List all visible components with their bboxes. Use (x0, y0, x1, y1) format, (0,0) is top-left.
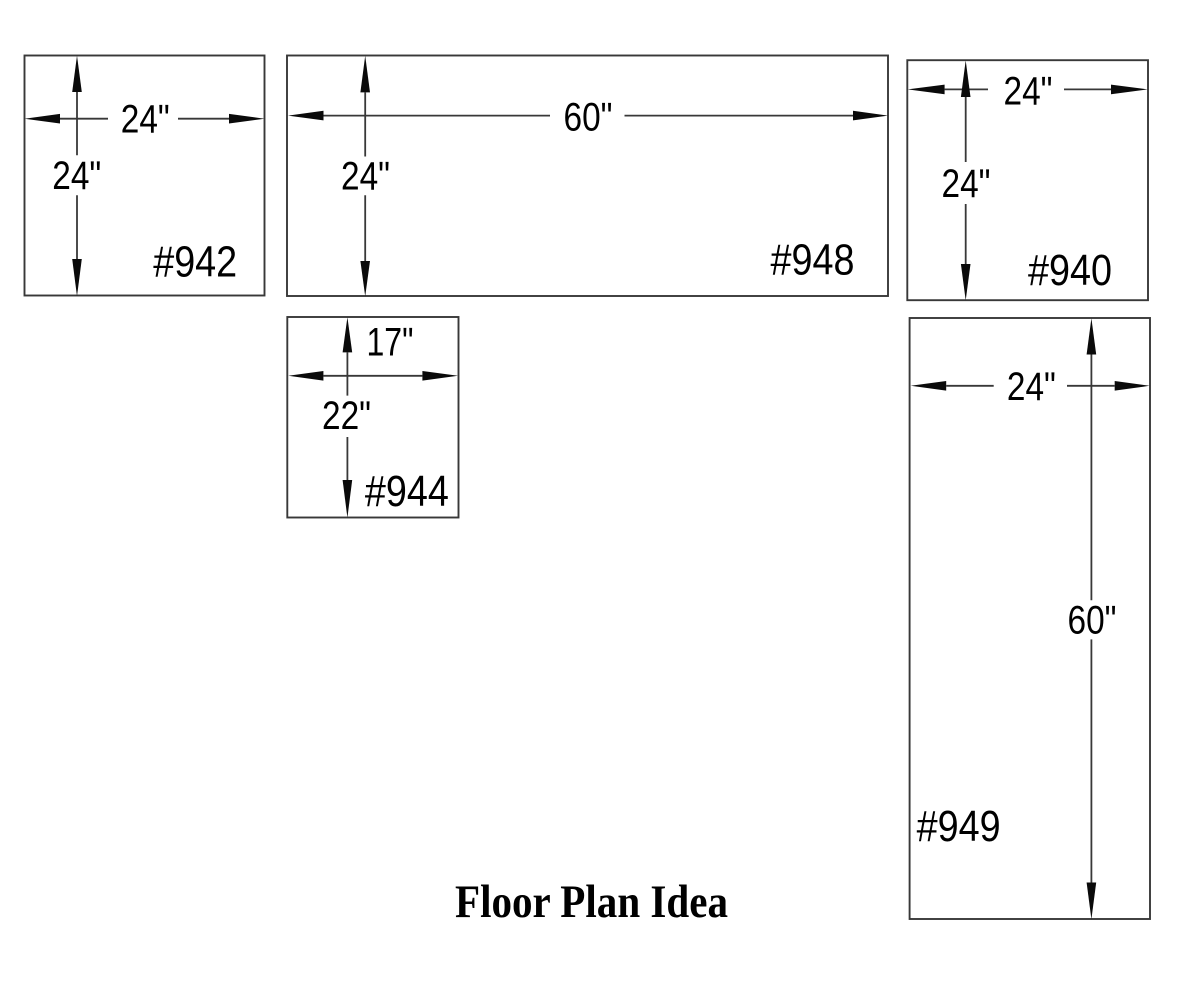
svg-text:24": 24" (121, 98, 170, 142)
svg-text:22": 22" (322, 394, 371, 438)
svg-text:#949: #949 (917, 802, 1001, 851)
svg-text:60": 60" (1068, 599, 1117, 643)
svg-text:24": 24" (1007, 365, 1056, 409)
svg-text:24": 24" (1004, 70, 1053, 114)
svg-text:24": 24" (52, 154, 101, 198)
svg-text:#942: #942 (153, 238, 237, 287)
svg-text:17": 17" (367, 320, 414, 364)
svg-text:60": 60" (564, 96, 613, 140)
svg-text:#948: #948 (771, 236, 855, 285)
svg-text:24": 24" (341, 155, 390, 199)
svg-text:#944: #944 (365, 467, 449, 516)
svg-text:24": 24" (942, 162, 991, 206)
svg-text:#940: #940 (1028, 246, 1112, 295)
svg-text:Floor Plan Idea: Floor Plan Idea (455, 876, 728, 928)
